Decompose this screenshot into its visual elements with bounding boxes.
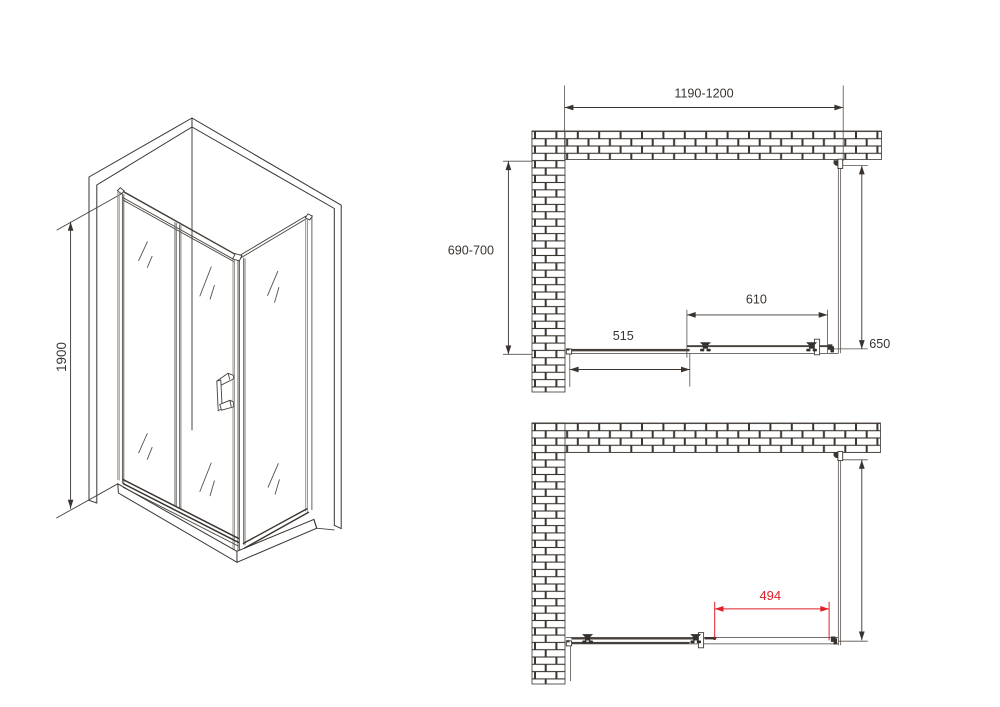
svg-text:1900: 1900: [54, 342, 69, 372]
svg-text:650: 650: [869, 337, 890, 351]
svg-text:494: 494: [759, 588, 781, 603]
svg-text:690-700: 690-700: [448, 244, 494, 258]
svg-text:610: 610: [746, 293, 767, 307]
svg-text:515: 515: [613, 329, 634, 343]
svg-text:1190-1200: 1190-1200: [674, 87, 733, 101]
